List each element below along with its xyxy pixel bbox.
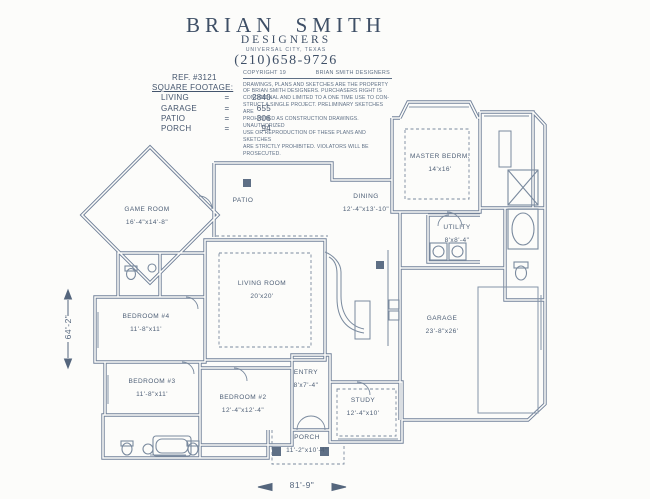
room-label-master-bedrm: MASTER BEDRM.14'x16' bbox=[395, 150, 485, 176]
copyright-block: COPYRIGHT 19 BRIAN SMITH DESIGNERS DRAWI… bbox=[243, 70, 392, 158]
room-label-study: STUDY12'-4"x10' bbox=[333, 394, 393, 420]
room-label-garage: GARAGE23'-8"x26' bbox=[397, 312, 487, 338]
brand-phone: (210)658-9726 bbox=[155, 53, 417, 69]
room-label-living-room: LIVING ROOM20'x20' bbox=[217, 277, 307, 303]
copyright-text: DRAWINGS, PLANS AND SKETCHES ARE THE PRO… bbox=[243, 82, 392, 158]
room-label-porch: PORCH11'-2"x10'-4" bbox=[276, 431, 338, 457]
room-label-bedroom-4: BEDROOM #411'-8"x11' bbox=[101, 310, 191, 336]
room-label-entry: ENTRY8'x7'-4" bbox=[281, 366, 331, 392]
overall-width-dimension: 81'-9" bbox=[277, 480, 327, 490]
garage-bay-outline bbox=[478, 287, 538, 413]
room-label-utility: UTILITY8'x8'-4" bbox=[427, 221, 487, 247]
floor-plan-sheet: BRIAN SMITH DESIGNERS UNIVERSAL CITY, TE… bbox=[0, 0, 650, 499]
room-label-dining: DINING12'-4"x13'-10" bbox=[326, 190, 406, 216]
room-label-bedroom-2: BEDROOM #212'-4"x12'-4" bbox=[198, 391, 288, 417]
room-label-patio: PATIO bbox=[218, 194, 268, 207]
copyright-owner: BRIAN SMITH DESIGNERS bbox=[316, 70, 390, 76]
overall-height-dimension: 64'-2" bbox=[63, 305, 73, 349]
room-label-bedroom-3: BEDROOM #311'-8"x11' bbox=[107, 375, 197, 401]
copyright-year: COPYRIGHT 19 bbox=[243, 70, 286, 76]
room-label-game-room: GAME ROOM16'-4"x14'-8" bbox=[102, 203, 192, 229]
brand-subtitle: DESIGNERS bbox=[155, 34, 417, 46]
copyright-heading: COPYRIGHT 19 BRIAN SMITH DESIGNERS bbox=[243, 70, 392, 79]
